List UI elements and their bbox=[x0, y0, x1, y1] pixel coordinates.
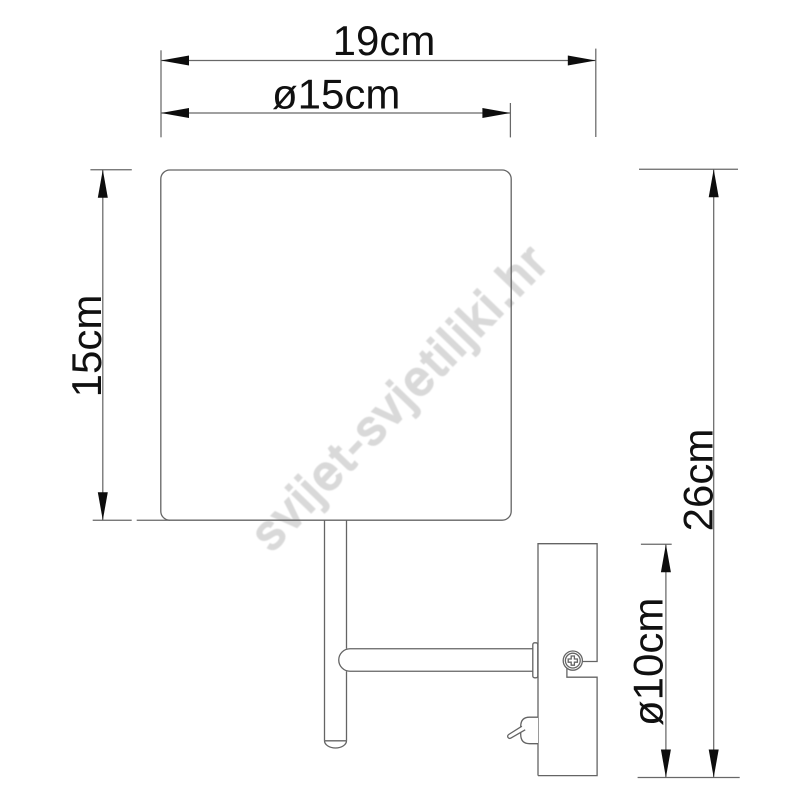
svg-text:ø10cm: ø10cm bbox=[624, 598, 671, 726]
svg-text:19cm: 19cm bbox=[333, 17, 436, 64]
svg-text:26cm: 26cm bbox=[674, 429, 721, 532]
svg-text:ø15cm: ø15cm bbox=[272, 70, 400, 117]
svg-text:15cm: 15cm bbox=[63, 295, 110, 398]
